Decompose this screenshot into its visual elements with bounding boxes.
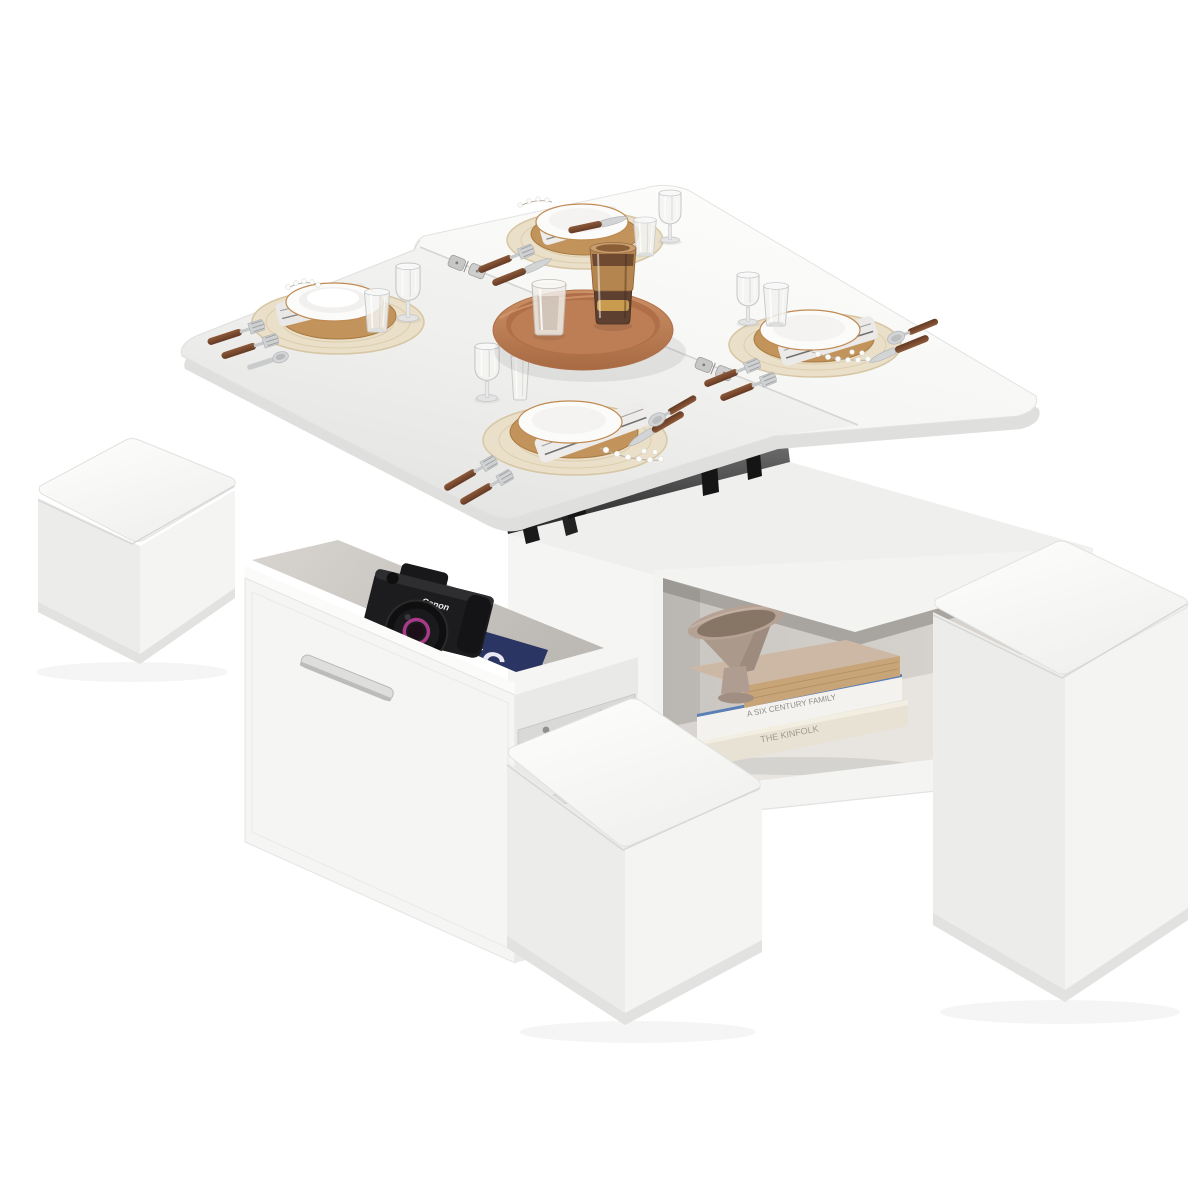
tumbler-glass bbox=[634, 217, 657, 256]
tumbler-glass bbox=[365, 289, 390, 333]
product-image: THE KINFOLK A SIX CENTURY FAMILY bbox=[0, 0, 1200, 1200]
tray-floor bbox=[511, 300, 655, 354]
stool-right bbox=[933, 541, 1188, 1024]
stool-shadow bbox=[520, 1021, 756, 1043]
product-photo-svg: THE KINFOLK A SIX CENTURY FAMILY bbox=[0, 0, 1200, 1200]
stool-shadow bbox=[940, 1000, 1180, 1024]
bowl-foot bbox=[718, 693, 754, 704]
stool-top-left bbox=[36, 439, 235, 683]
stool-shadow bbox=[36, 662, 228, 682]
tray-clear-glass bbox=[532, 279, 566, 340]
bowl-stem bbox=[721, 666, 750, 694]
berry-sprig bbox=[518, 197, 552, 207]
tumbler-glass bbox=[764, 283, 789, 327]
tray-amber-glasses bbox=[590, 243, 636, 332]
